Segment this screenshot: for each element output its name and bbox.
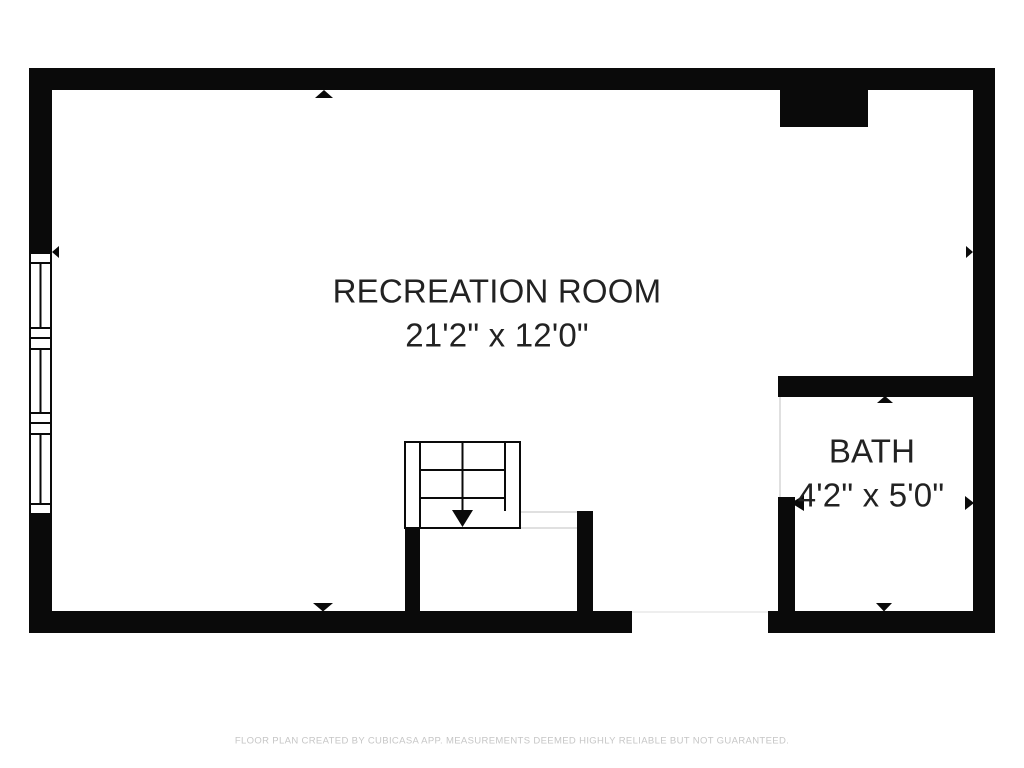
arrow-down-icon — [313, 603, 333, 612]
arrow-up-icon — [315, 90, 333, 98]
arrow-right-icon — [966, 246, 973, 258]
bath-arrow-up-icon — [877, 396, 893, 403]
footer-disclaimer: FLOOR PLAN CREATED BY CUBICASA APP. MEAS… — [235, 736, 789, 746]
bath-arrow-down-icon — [876, 603, 892, 612]
bath-room-name: BATH — [829, 435, 915, 468]
bath-arrow-right-icon — [965, 496, 974, 510]
bath-room-dimensions: 4'2" x 5'0" — [798, 479, 944, 512]
arrow-left-icon — [52, 246, 59, 258]
staircase-symbol — [405, 442, 520, 528]
recreation-room-dimensions: 21'2" x 12'0" — [405, 319, 589, 352]
window-symbol — [29, 253, 52, 515]
left-wall-upper — [29, 90, 52, 253]
floor-plan-page: RECREATION ROOM 21'2" x 12'0" BATH 4'2" … — [0, 0, 1024, 768]
openings — [513, 397, 780, 612]
bottom-wall — [29, 611, 632, 633]
bath-left-wall — [778, 497, 795, 611]
stair-closet-right-wall — [577, 511, 593, 611]
wall-niche — [780, 90, 868, 127]
recreation-room-name: RECREATION ROOM — [333, 275, 662, 308]
right-wall — [973, 90, 995, 633]
bath-top-wall — [778, 376, 973, 397]
top-wall — [29, 68, 995, 90]
floor-plan-drawing — [0, 0, 1024, 768]
bath-bottom-wall — [768, 611, 995, 633]
stair-closet-left-wall — [405, 528, 420, 611]
